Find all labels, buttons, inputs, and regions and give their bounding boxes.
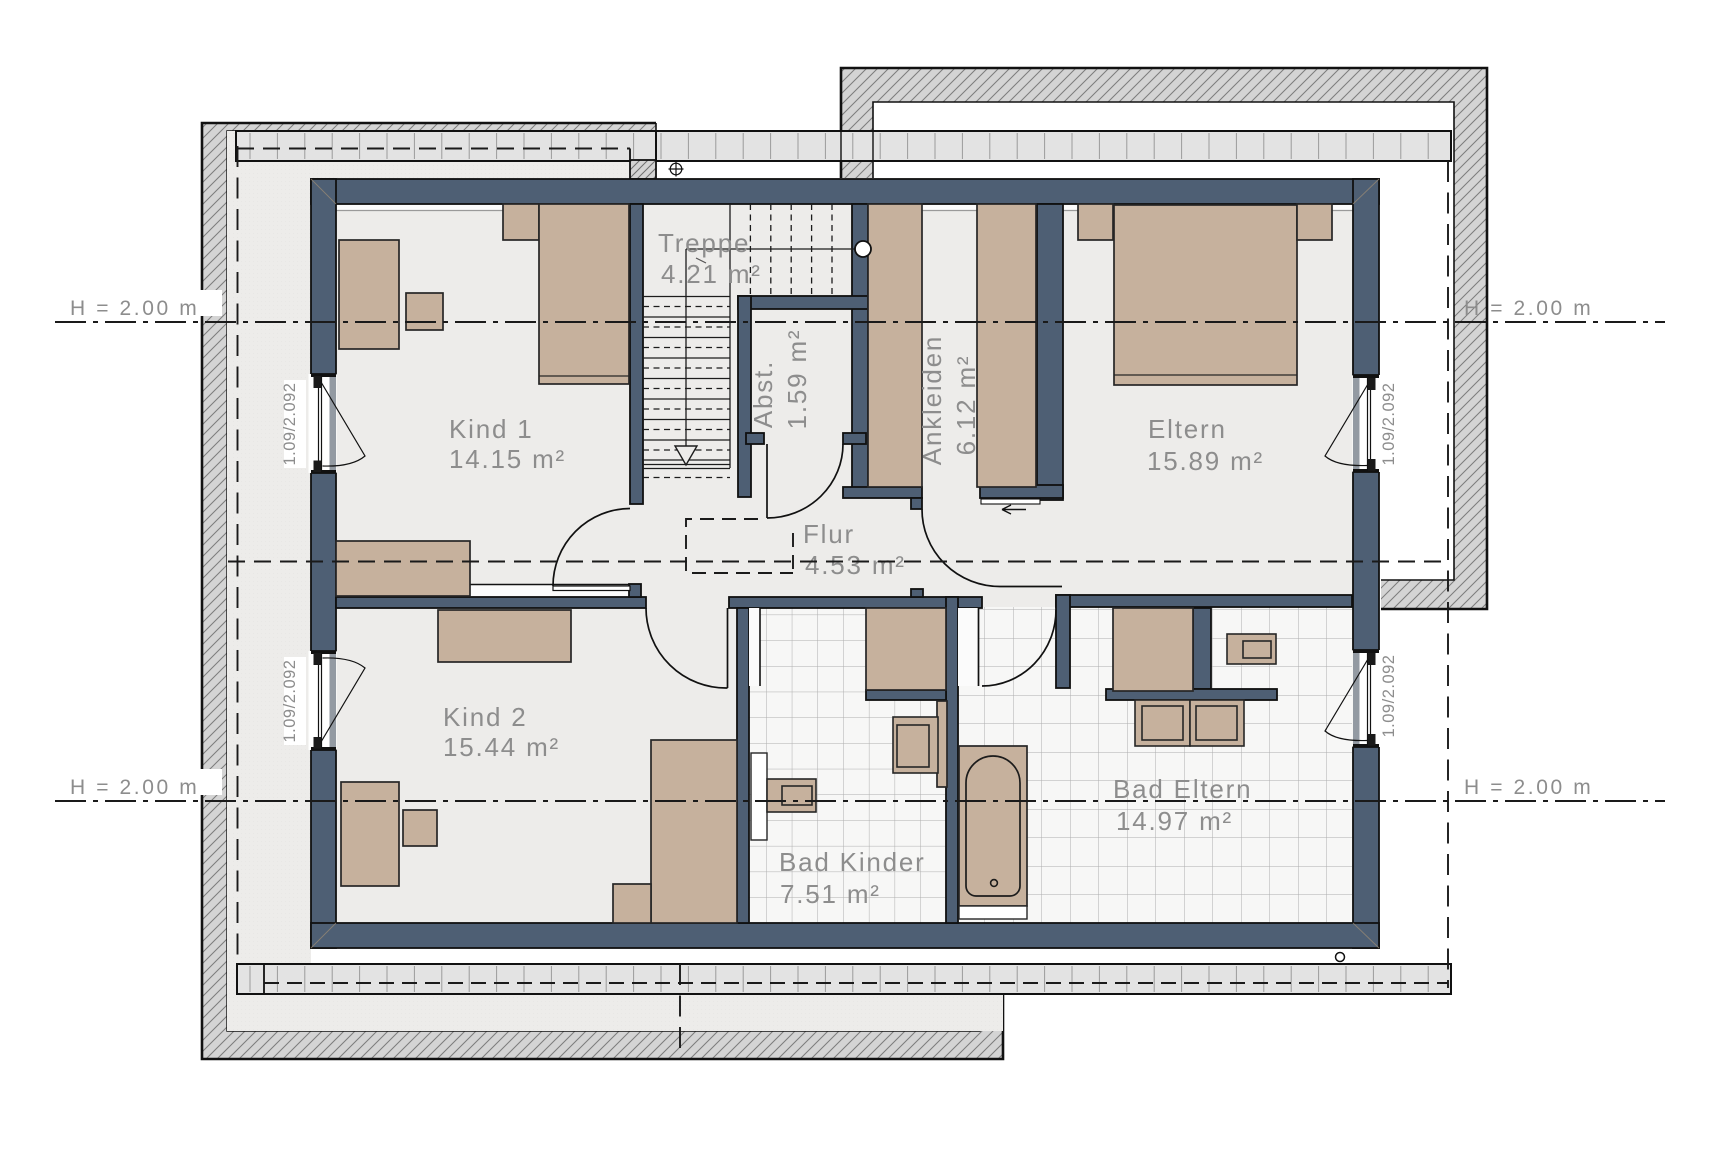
svg-text:Kind 2: Kind 2 bbox=[443, 702, 528, 732]
svg-text:1.09/2.092: 1.09/2.092 bbox=[281, 383, 299, 466]
svg-text:1.59 m²: 1.59 m² bbox=[782, 329, 812, 430]
svg-text:Bad Eltern: Bad Eltern bbox=[1113, 774, 1252, 804]
svg-text:Abst.: Abst. bbox=[748, 360, 778, 428]
svg-text:H = 2.00 m: H = 2.00 m bbox=[70, 297, 199, 320]
svg-text:1.09/2.092: 1.09/2.092 bbox=[281, 660, 299, 743]
svg-text:7.51 m²: 7.51 m² bbox=[780, 879, 881, 909]
svg-text:H = 2.00 m: H = 2.00 m bbox=[1464, 776, 1593, 799]
svg-text:6.12 m²: 6.12 m² bbox=[951, 355, 981, 456]
svg-text:Bad Kinder: Bad Kinder bbox=[779, 847, 926, 877]
svg-text:Treppe: Treppe bbox=[658, 228, 750, 258]
svg-text:14.97 m²: 14.97 m² bbox=[1116, 806, 1233, 836]
svg-text:15.44 m²: 15.44 m² bbox=[443, 732, 560, 762]
svg-text:14.15 m²: 14.15 m² bbox=[449, 444, 566, 474]
svg-text:Eltern: Eltern bbox=[1148, 414, 1227, 444]
svg-text:15.89 m²: 15.89 m² bbox=[1147, 446, 1264, 476]
svg-text:1.09/2.092: 1.09/2.092 bbox=[1380, 383, 1398, 466]
svg-text:4.53 m²: 4.53 m² bbox=[805, 550, 906, 580]
svg-text:H = 2.00 m: H = 2.00 m bbox=[70, 776, 199, 799]
svg-text:4.21 m²: 4.21 m² bbox=[661, 259, 762, 289]
svg-text:H = 2.00 m: H = 2.00 m bbox=[1464, 297, 1593, 320]
svg-text:1.09/2.092: 1.09/2.092 bbox=[1380, 655, 1398, 738]
svg-text:Flur: Flur bbox=[803, 519, 855, 549]
svg-text:Kind 1: Kind 1 bbox=[449, 414, 534, 444]
svg-text:Ankleiden: Ankleiden bbox=[917, 335, 947, 465]
